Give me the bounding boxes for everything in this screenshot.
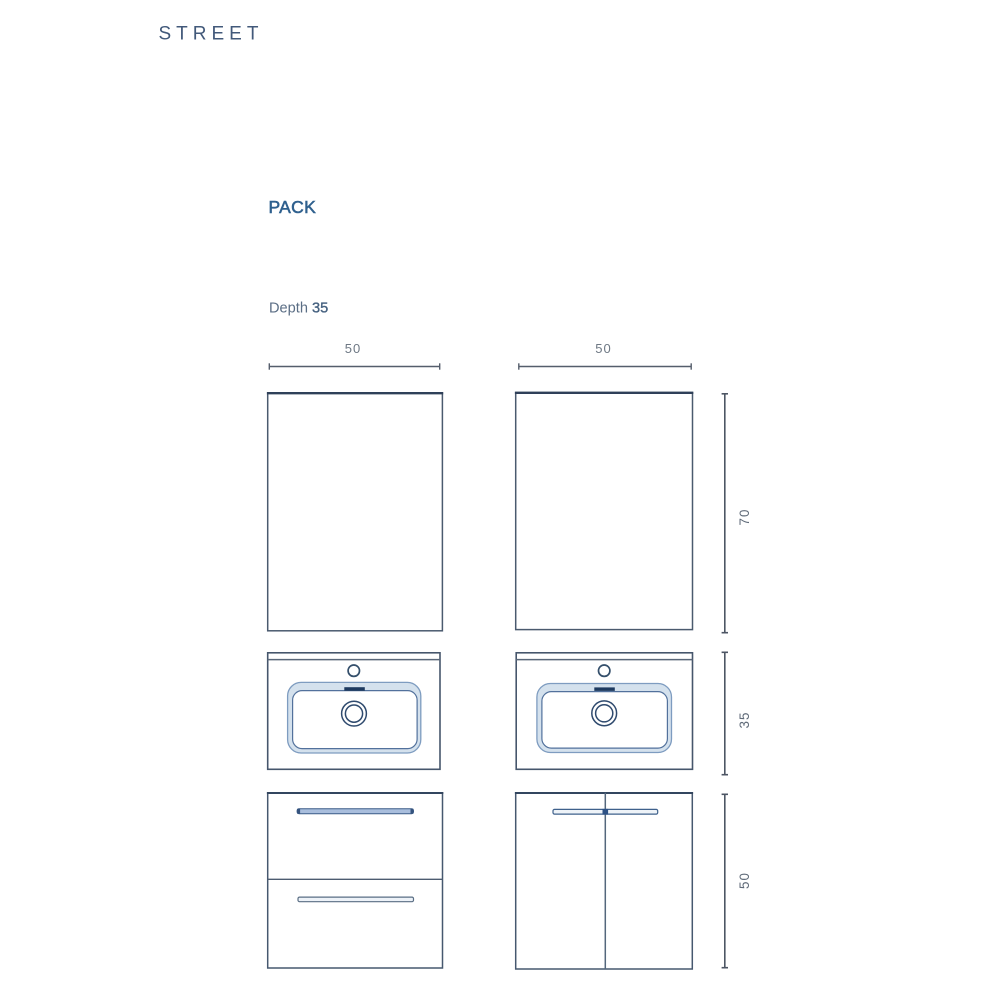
svg-text:50: 50 xyxy=(595,341,611,356)
svg-text:50: 50 xyxy=(737,872,752,889)
svg-text:50: 50 xyxy=(345,341,361,356)
svg-text:35: 35 xyxy=(737,712,752,729)
svg-text:STREET: STREET xyxy=(159,24,264,45)
svg-text:PACK: PACK xyxy=(269,197,317,217)
svg-text:70: 70 xyxy=(737,509,752,526)
svg-text:Depth 35: Depth 35 xyxy=(269,301,328,317)
